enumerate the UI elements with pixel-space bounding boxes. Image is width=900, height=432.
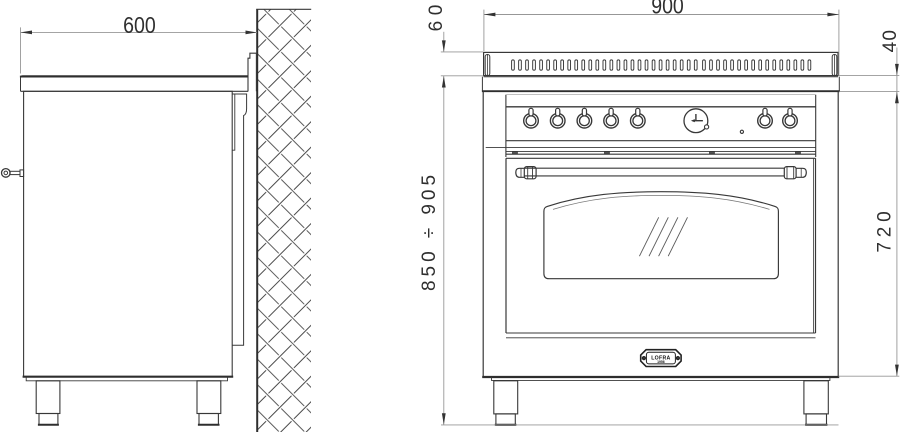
- svg-text:60: 60: [426, 0, 447, 31]
- svg-text:40: 40: [880, 29, 900, 53]
- svg-text:600: 600: [123, 12, 156, 38]
- svg-text:850 ÷ 905: 850 ÷ 905: [419, 171, 440, 291]
- svg-text:720: 720: [874, 207, 895, 253]
- svg-text:1956: 1956: [657, 360, 665, 364]
- svg-text:900: 900: [651, 0, 684, 19]
